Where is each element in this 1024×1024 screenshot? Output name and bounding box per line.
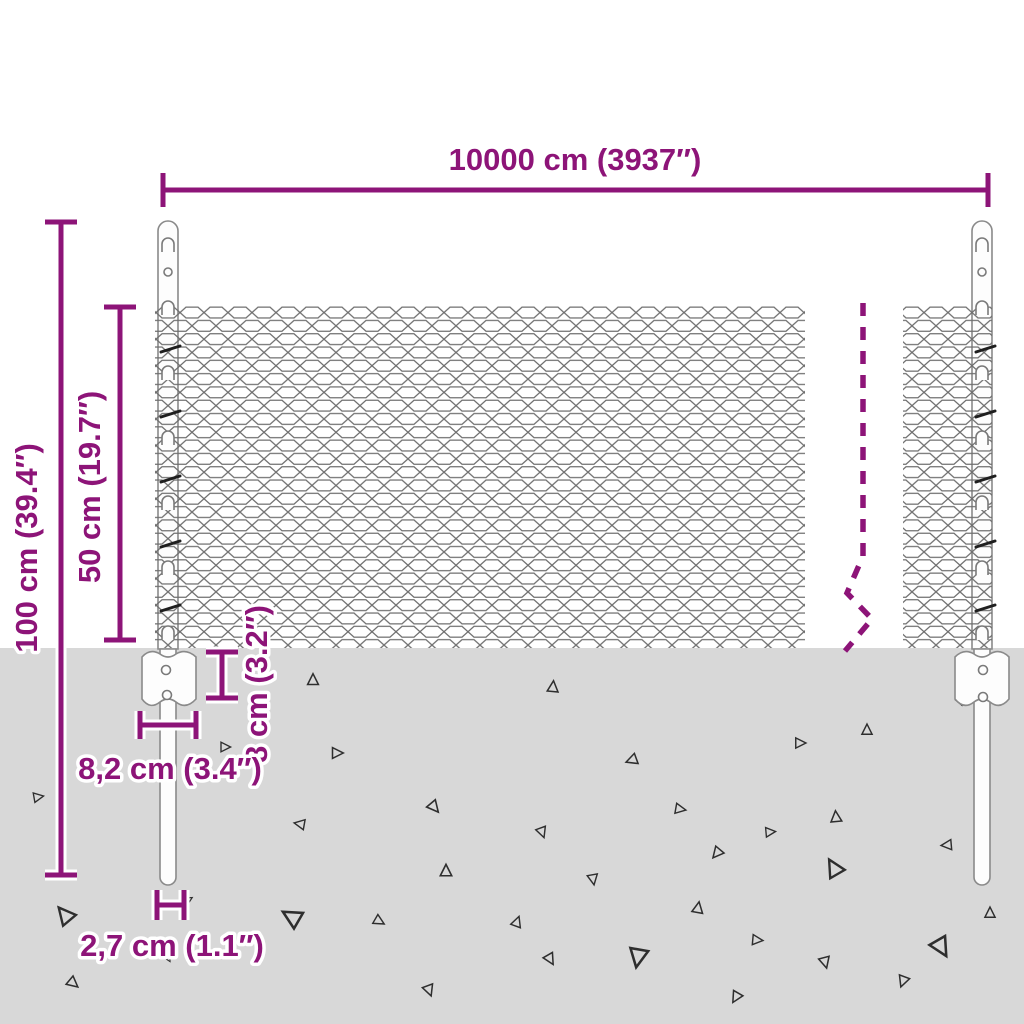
bracket-hole xyxy=(163,691,172,700)
fence-dimension-diagram: 10000 cm (3937″) 100 cm (39.4″) 50 cm (1… xyxy=(0,0,1024,1024)
dim-connector-width-label: 8,2 cm (3.4″) xyxy=(78,751,262,786)
hook-icon xyxy=(162,496,174,510)
bracket-hole xyxy=(979,666,988,675)
dim-mesh-height: 50 cm (19.7″) xyxy=(72,307,136,640)
hook-icon xyxy=(976,561,988,575)
hook-icon xyxy=(976,301,988,315)
break-line xyxy=(845,303,872,651)
hook-icon xyxy=(162,238,174,252)
dim-total-width-label: 10000 cm (3937″) xyxy=(449,142,702,177)
dim-mesh-height-label: 50 cm (19.7″) xyxy=(72,391,107,583)
hook-icon xyxy=(976,431,988,445)
dim-connector-height-label: 8 cm (3.2″) xyxy=(239,605,274,763)
mesh-panel-left xyxy=(155,306,805,648)
hook-icon xyxy=(162,301,174,315)
bracket-hole xyxy=(979,693,988,702)
post-hole xyxy=(164,268,172,276)
hook-icon xyxy=(976,496,988,510)
dim-total-width: 10000 cm (3937″) xyxy=(163,142,988,207)
anchor-bracket-right xyxy=(955,652,1009,706)
post-hole xyxy=(978,268,986,276)
diagram-canvas: 10000 cm (3937″) 100 cm (39.4″) 50 cm (1… xyxy=(0,0,1024,1024)
hook-icon xyxy=(976,238,988,252)
dim-total-height-label: 100 cm (39.4″) xyxy=(9,443,44,653)
hook-icon xyxy=(976,626,988,640)
dim-post-diameter-label: 2,7 cm (1.1″) xyxy=(80,928,264,963)
hook-icon xyxy=(162,626,174,640)
hook-icon xyxy=(162,561,174,575)
hook-icon xyxy=(162,431,174,445)
anchor-bracket-left xyxy=(142,652,196,706)
bracket-hole xyxy=(162,666,171,675)
mesh-panel-right xyxy=(903,306,992,648)
hook-icon xyxy=(976,366,988,380)
hook-icon xyxy=(162,366,174,380)
